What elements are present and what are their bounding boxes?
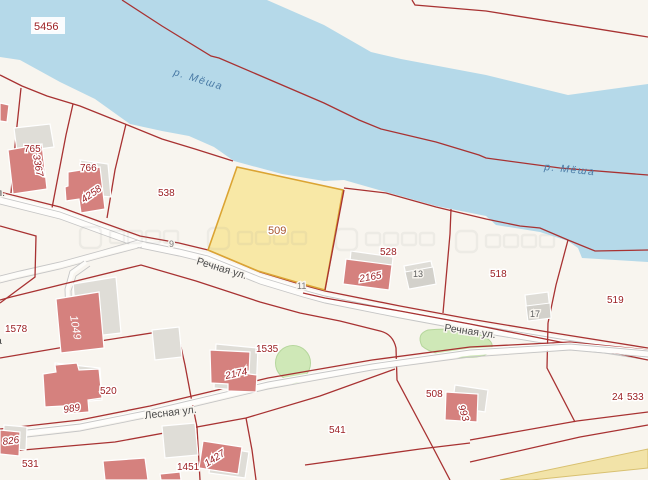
- svg-text:1451: 1451: [177, 462, 200, 473]
- svg-text:508: 508: [426, 389, 443, 400]
- svg-text:528: 528: [380, 247, 397, 258]
- svg-text:5456: 5456: [34, 21, 58, 33]
- svg-text:13: 13: [413, 269, 423, 279]
- svg-text:766: 766: [80, 163, 97, 174]
- svg-text:9: 9: [169, 239, 174, 249]
- svg-text:531: 531: [22, 459, 39, 470]
- svg-text:24: 24: [612, 392, 624, 403]
- svg-text:17: 17: [530, 309, 540, 319]
- svg-text:519: 519: [607, 295, 624, 306]
- svg-text:1578: 1578: [5, 324, 28, 335]
- svg-text:л.: л.: [0, 187, 5, 199]
- svg-text:520: 520: [100, 386, 117, 397]
- svg-text:541: 541: [329, 425, 346, 436]
- svg-text:а: а: [0, 335, 2, 347]
- svg-text:509: 509: [268, 225, 286, 237]
- svg-text:533: 533: [627, 392, 644, 403]
- svg-text:538: 538: [158, 188, 175, 199]
- svg-text:518: 518: [490, 269, 507, 280]
- svg-text:1535: 1535: [256, 344, 279, 355]
- svg-text:11: 11: [297, 281, 306, 291]
